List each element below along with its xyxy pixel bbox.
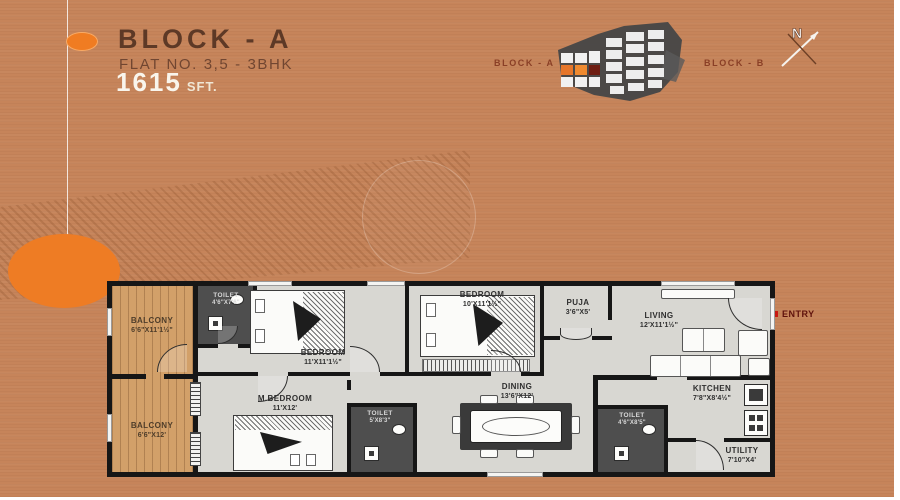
room-label-balcony-top: BALCONY6'6"X11'1½" [131, 316, 173, 335]
orange-bullet-icon [66, 32, 98, 51]
window [367, 281, 405, 286]
chair [516, 449, 534, 458]
entry-label: ENTRY [782, 309, 815, 319]
chair [452, 416, 461, 434]
room-label-living: LIVING12'X11'1½" [640, 311, 678, 330]
wall [598, 405, 668, 409]
wall [593, 375, 657, 380]
wall [668, 438, 696, 442]
wall [593, 380, 598, 472]
washbasin [392, 424, 406, 435]
kitchen-stove [744, 410, 768, 436]
wall [540, 286, 544, 376]
chair [571, 416, 580, 434]
window [107, 308, 112, 336]
chair [480, 449, 498, 458]
circle-decoration [362, 160, 476, 274]
svg-text:N: N [792, 25, 802, 41]
wall [544, 336, 560, 340]
wall [164, 374, 193, 379]
area-value: 1615 [116, 67, 182, 97]
room-label-balcony-bottom: BALCONY6'6"X12' [131, 421, 173, 440]
site-keyplan-map [548, 20, 686, 104]
wardrobe [190, 432, 201, 466]
wall [288, 372, 350, 376]
wc-fixture [364, 446, 379, 461]
room-label-toilet-right: TOILET4'6"X8'5" [618, 412, 646, 428]
area-text: 1615SFT. [116, 67, 218, 98]
wardrobe [190, 382, 201, 416]
entry-door-opening [770, 298, 775, 330]
wall [198, 344, 218, 348]
armchair [738, 330, 768, 356]
chair [480, 395, 498, 404]
wc-fixture [614, 446, 629, 461]
room-label-utility: UTILITY7'10"X4' [725, 446, 758, 465]
door-arc [696, 440, 724, 470]
dining-table [460, 403, 572, 450]
wall [347, 380, 351, 390]
room-label-toilet-mid: TOILET5'X8'3" [367, 410, 392, 426]
orange-ellipse-decoration [8, 234, 120, 308]
room-label-bedroom-mid: BEDROOM10'X11'1½" [460, 290, 505, 309]
entry-door-arc [728, 298, 762, 330]
side-table [748, 358, 770, 376]
loveseat-sofa [682, 328, 725, 352]
wall [592, 336, 612, 340]
brochure-page: BLOCK - A FLAT NO. 3,5 - 3BHK 1615SFT. B… [0, 0, 900, 500]
window [661, 281, 735, 286]
room-label-m-bedroom: M.BEDROOM11'X12' [258, 394, 312, 413]
balcony-floor [112, 286, 193, 472]
kitchen-sink [744, 384, 768, 406]
window [248, 281, 292, 286]
north-compass-icon: N [776, 24, 824, 72]
puja-arch [560, 328, 592, 340]
area-unit: SFT. [187, 79, 218, 94]
page-edge-right [894, 0, 900, 500]
room-label-puja: PUJA3'6"X5' [566, 298, 590, 317]
room-label-kitchen: KITCHEN7'8"X8'4½" [693, 384, 731, 403]
room-label-dining: DINING13'6"X12' [501, 382, 534, 401]
door-arc [350, 346, 380, 372]
bed [233, 415, 333, 471]
keyplan-block-b-label: BLOCK - B [704, 58, 765, 68]
room-label-bedroom-left: BEDROOM11'X11'1½" [301, 348, 346, 367]
keyplan-block-a-label: BLOCK - A [494, 58, 555, 68]
wall [409, 372, 491, 376]
bed [250, 290, 345, 354]
wall [405, 286, 409, 376]
page-title: BLOCK - A [118, 24, 292, 55]
room-label-toilet-top: TOILET4'6"X7'6" [212, 292, 240, 308]
wall [413, 403, 417, 472]
tv-cabinet [661, 289, 735, 299]
wall [347, 403, 351, 472]
window [487, 472, 543, 477]
wall [347, 403, 417, 407]
three-seat-sofa [650, 355, 741, 377]
wall [198, 372, 258, 376]
floor-plan: BALCONY6'6"X11'1½" BALCONY6'6"X12' TOILE… [107, 281, 775, 477]
wall [380, 372, 409, 376]
wall [724, 438, 770, 442]
wall [112, 374, 146, 379]
wall [608, 286, 612, 320]
window [107, 414, 112, 442]
